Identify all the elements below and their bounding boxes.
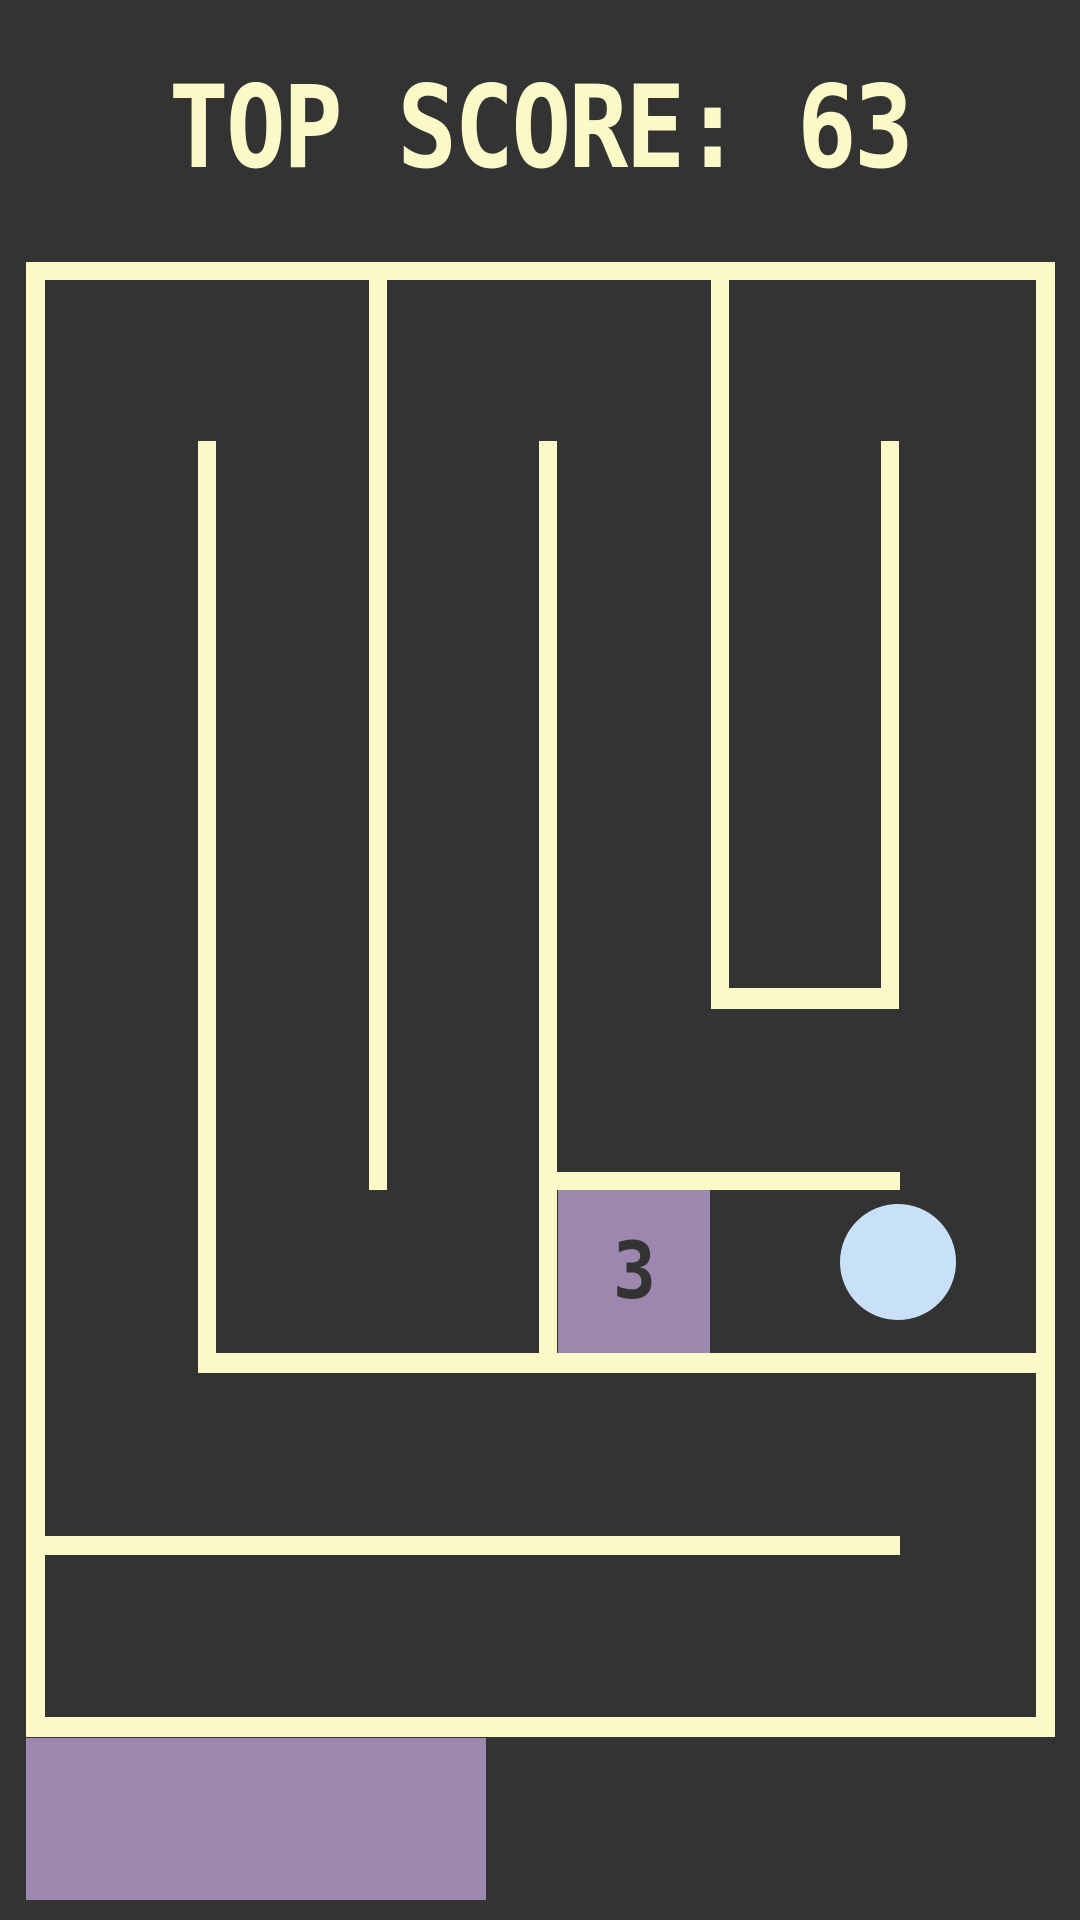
player-ball[interactable] — [840, 1204, 956, 1320]
outer-border-bottom — [26, 1717, 1055, 1737]
wall-hanging-left-vertical — [369, 280, 387, 1190]
wall-block-top-horizontal — [539, 1172, 900, 1190]
outer-border-top — [26, 262, 1055, 280]
player-paddle[interactable] — [26, 1738, 486, 1900]
countdown-block-number: 3 — [612, 1233, 655, 1311]
wall-inner-right-vertical — [881, 441, 899, 1009]
wall-hanging-right-vertical — [711, 280, 729, 1009]
wall-lower-horizontal-2 — [26, 1536, 900, 1555]
wall-inner-left-vertical — [198, 441, 216, 1373]
wall-lower-horizontal-1 — [198, 1353, 1036, 1373]
outer-border-right — [1036, 262, 1055, 1737]
top-score-label: TOP SCORE: 63 — [70, 62, 1010, 193]
wall-inner-middle-vertical — [539, 441, 557, 1373]
countdown-block: 3 — [558, 1190, 710, 1353]
outer-border-left — [26, 262, 45, 1737]
game-stage[interactable]: TOP SCORE: 63 3 — [0, 0, 1080, 1920]
wall-chicane-horizontal — [711, 988, 899, 1009]
